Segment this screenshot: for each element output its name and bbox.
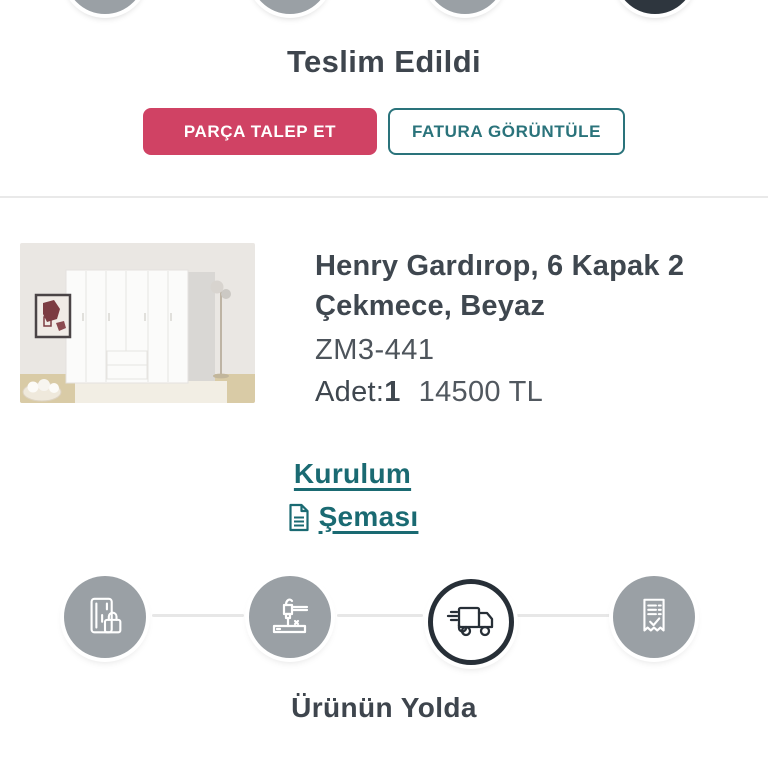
receipt-check-icon <box>631 594 677 640</box>
order-status-title: Teslim Edildi <box>0 44 768 80</box>
request-part-button[interactable]: PARÇA TALEP ET <box>143 108 377 155</box>
qty-value: 1 <box>384 376 400 408</box>
qty-label: Adet: <box>315 376 384 408</box>
product-qty-price: Adet:114500 TL <box>315 376 543 409</box>
tracker-step-shipping-active <box>428 579 514 665</box>
document-icon <box>287 503 311 532</box>
delivery-truck-icon <box>446 601 496 643</box>
tracker-current-step-label: Ürünün Yolda <box>0 692 768 724</box>
product-sku: ZM3-441 <box>315 334 435 367</box>
tracker-connector-3 <box>514 614 612 617</box>
product-image[interactable] <box>20 243 255 403</box>
scheme-link-text-2[interactable]: Şeması <box>319 501 419 533</box>
order-tracking-page: Teslim Edildi PARÇA TALEP ET FATURA GÖRÜ… <box>0 0 768 768</box>
top-step-circle-2 <box>250 0 330 14</box>
view-invoice-button[interactable]: FATURA GÖRÜNTÜLE <box>388 108 625 155</box>
action-buttons-row: PARÇA TALEP ET FATURA GÖRÜNTÜLE <box>0 108 768 155</box>
tracker-step-payment <box>64 576 146 658</box>
top-step-circle-1 <box>65 0 145 14</box>
tracker-step-delivery <box>613 576 695 658</box>
installation-scheme-link[interactable]: Kurulum Şeması <box>20 458 685 533</box>
tracker-connector-2 <box>337 614 423 617</box>
top-step-circle-4-active <box>615 0 695 14</box>
section-divider <box>0 196 768 198</box>
wardrobe-room-illustration <box>20 243 255 403</box>
tracker-step-production <box>249 576 331 658</box>
scheme-link-line1[interactable]: Kurulum <box>20 458 685 490</box>
product-title: Henry Gardırop, 6 Kapak 2 Çekmece, Beyaz <box>315 246 713 326</box>
top-step-circle-3 <box>425 0 505 14</box>
credit-card-lock-icon <box>82 594 128 640</box>
product-price: 14500 TL <box>419 376 543 408</box>
scheme-link-text-1[interactable]: Kurulum <box>294 458 411 489</box>
tracker-connector-1 <box>152 614 244 617</box>
assembly-drill-icon <box>266 593 314 641</box>
scheme-link-line2[interactable]: Şeması <box>20 501 685 533</box>
